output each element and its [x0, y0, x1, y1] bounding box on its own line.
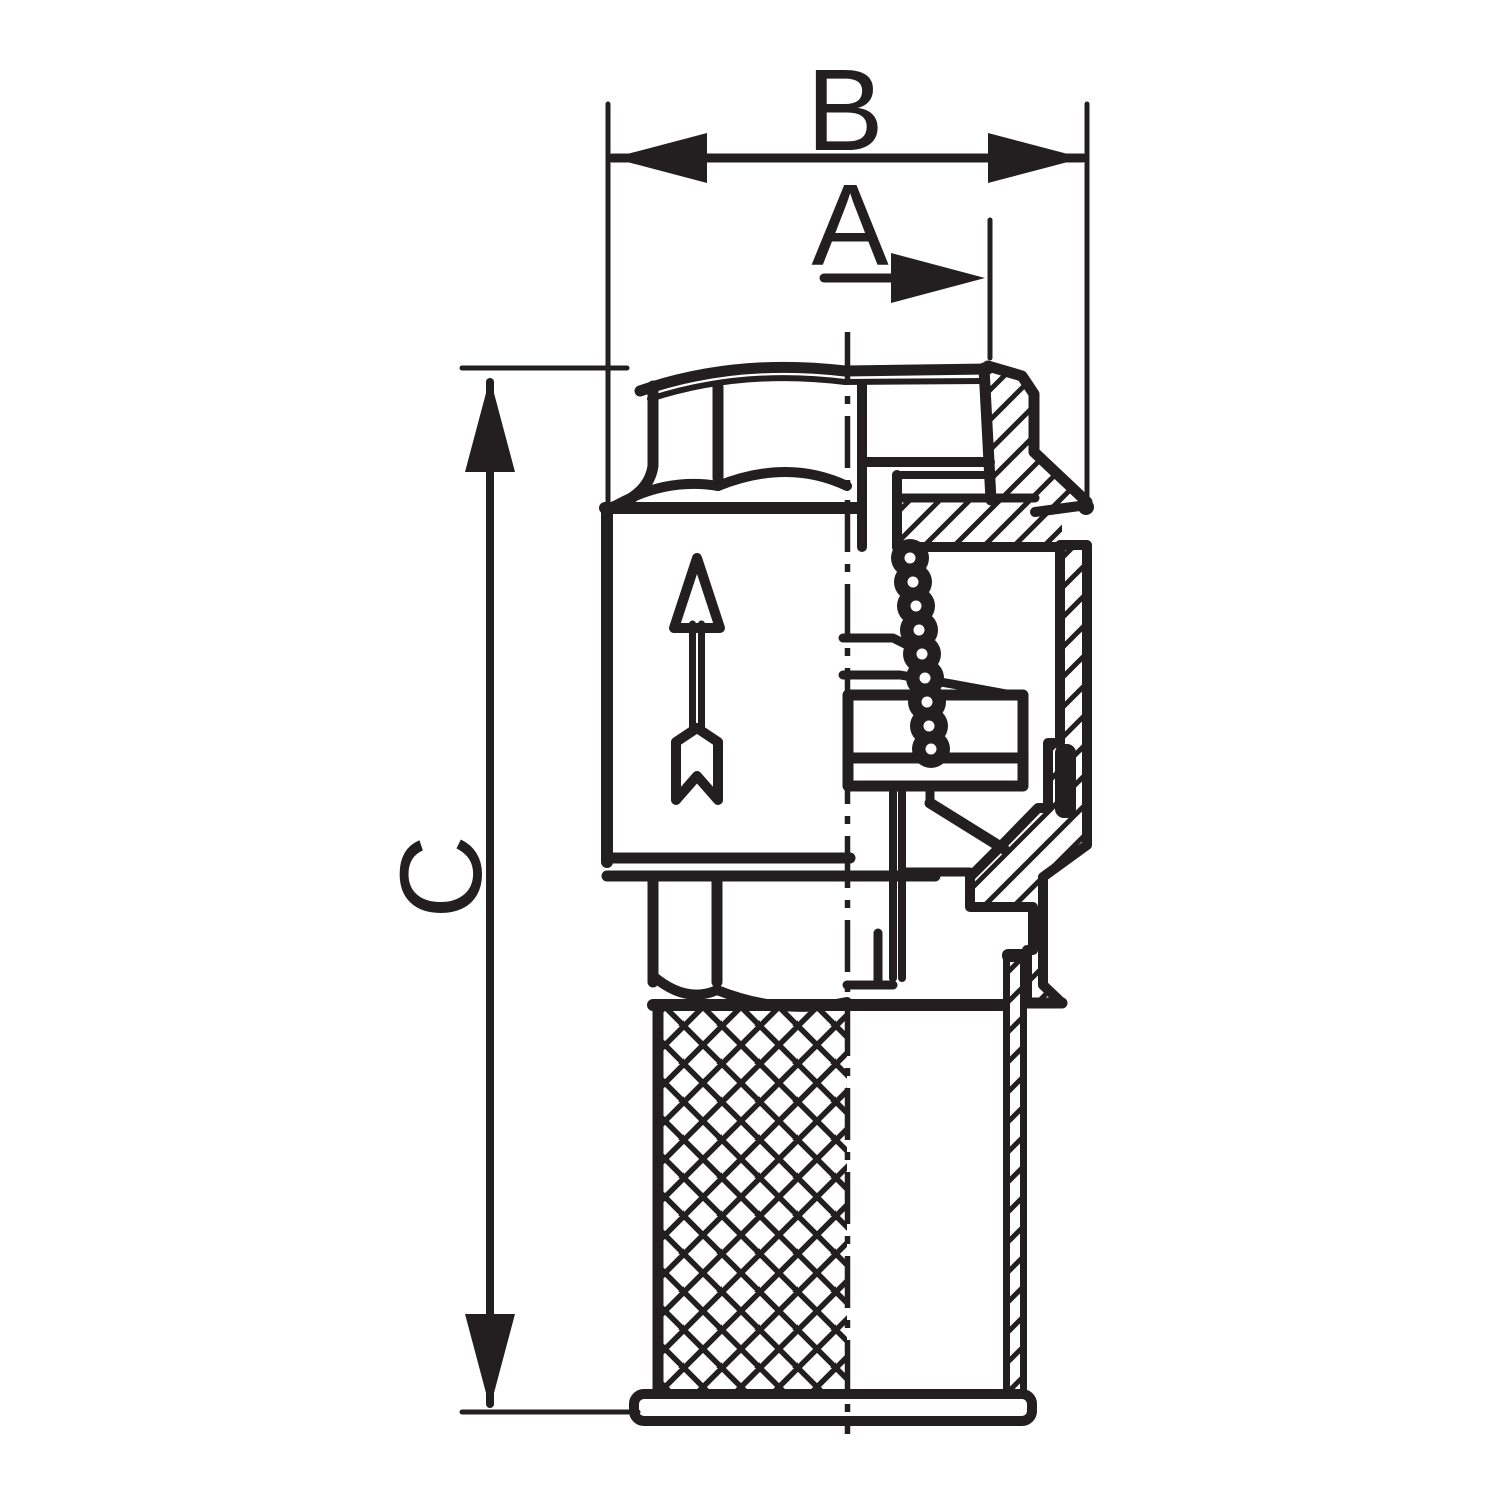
- arrowhead-up: [465, 378, 515, 472]
- arrow-fletching: [676, 728, 718, 800]
- arrowhead-right: [988, 133, 1083, 183]
- flow-direction-arrow: [674, 558, 720, 800]
- arrowhead-right: [891, 253, 985, 303]
- strainer-mesh: [661, 1008, 847, 1394]
- valve-technical-drawing: B A C: [0, 0, 1500, 1500]
- dimension-label-a: A: [811, 160, 889, 290]
- suction-tube-wall-section: [1008, 958, 1022, 1394]
- nut-right-edge: [984, 368, 991, 500]
- seat-cone: [930, 803, 1004, 849]
- hex-top-inner-edge: [650, 378, 985, 399]
- bonnet-band-section: [897, 498, 1062, 547]
- hex-chamfer-arc: [653, 976, 717, 995]
- drawing-canvas: B A C: [0, 0, 1500, 1500]
- base-flange: [634, 1394, 1032, 1421]
- arrow-shaft: [693, 624, 702, 740]
- arrowhead-left: [612, 133, 707, 183]
- suction-tube-cap: [1002, 949, 1028, 962]
- upper-hex-nut: [613, 367, 988, 507]
- arrowhead-down: [465, 1314, 515, 1408]
- dimension-label-c: C: [376, 835, 506, 919]
- hex-chamfer-arc: [718, 472, 847, 486]
- dimension-label-b: B: [806, 45, 883, 175]
- arrow-head: [674, 558, 720, 628]
- retaining-ring: [1055, 744, 1076, 818]
